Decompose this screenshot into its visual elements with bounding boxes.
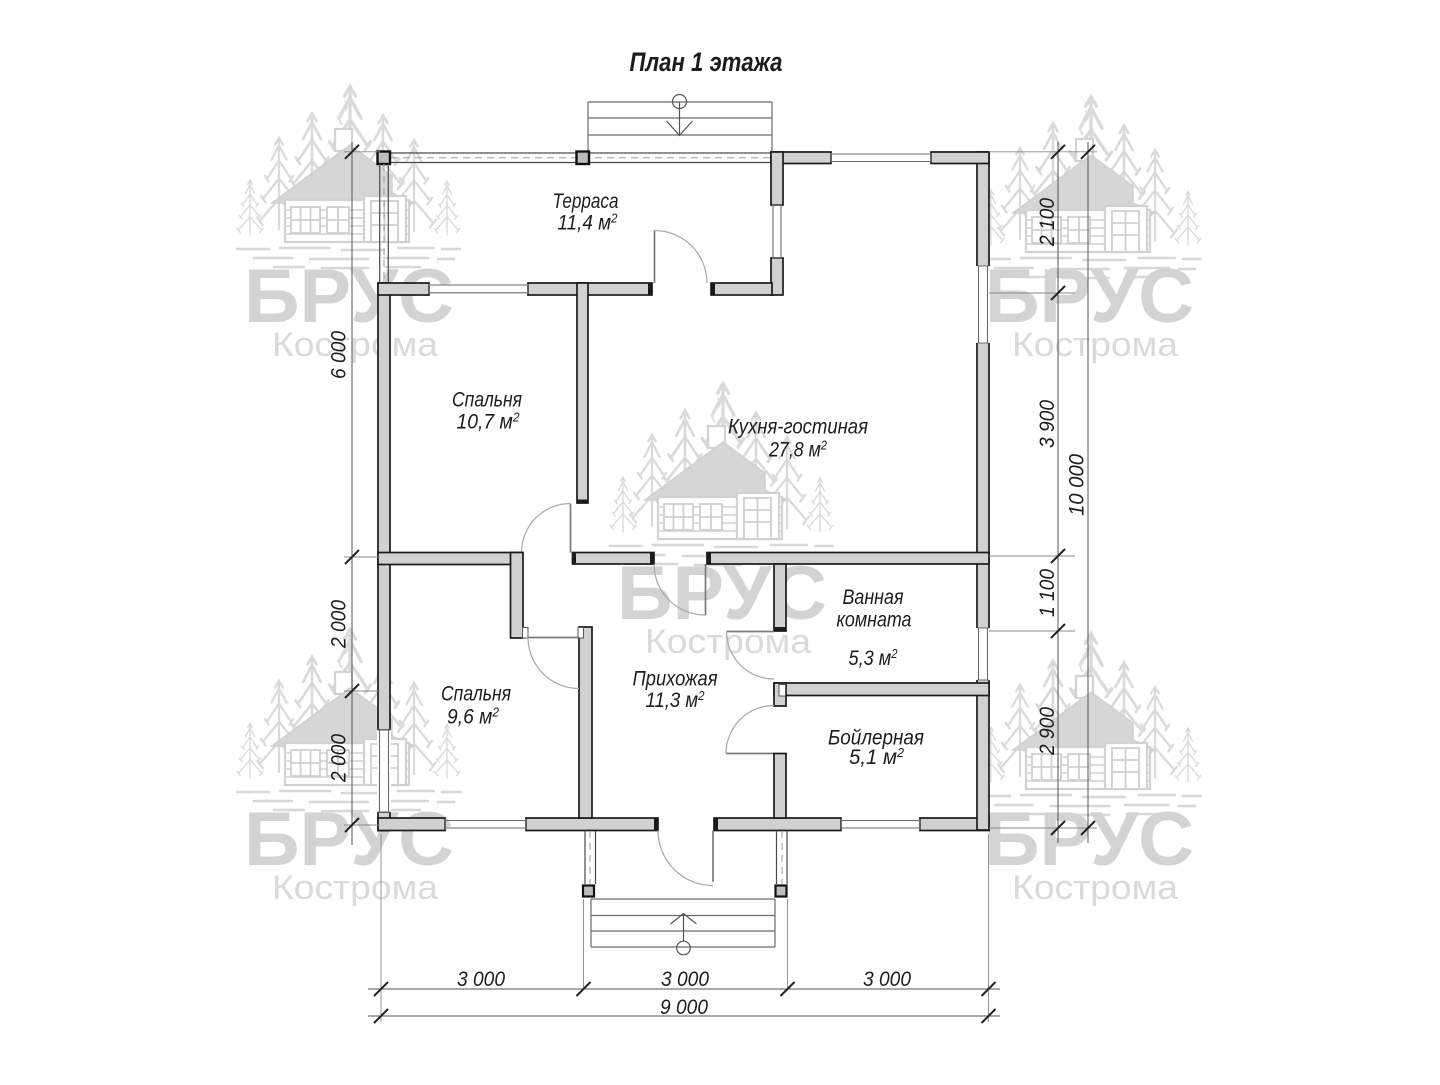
svg-text:10 000: 10 000	[1066, 454, 1089, 516]
svg-text:6 000: 6 000	[328, 331, 351, 379]
svg-text:2 100: 2 100	[1036, 198, 1059, 247]
svg-text:9,6 м2: 9,6 м2	[447, 705, 500, 729]
svg-text:3 000: 3 000	[863, 968, 911, 991]
svg-text:2 900: 2 900	[1036, 707, 1059, 756]
svg-text:5,3 м2: 5,3 м2	[849, 646, 899, 670]
svg-text:11,4 м2: 11,4 м2	[558, 211, 619, 235]
svg-text:27,8 м2: 27,8 м2	[768, 438, 827, 462]
svg-text:Спальня: Спальня	[441, 683, 511, 706]
svg-text:10,7 м2: 10,7 м2	[457, 410, 521, 434]
svg-text:11,3 м2: 11,3 м2	[646, 688, 706, 712]
svg-text:2 000: 2 000	[328, 734, 351, 783]
svg-text:9 000: 9 000	[660, 996, 708, 1019]
svg-text:Спальня: Спальня	[452, 389, 522, 412]
svg-text:План 1 этажа: План 1 этажа	[630, 47, 783, 77]
svg-text:Ванная: Ванная	[843, 586, 904, 609]
svg-text:Прихожая: Прихожая	[633, 668, 718, 691]
svg-text:комната: комната	[837, 609, 912, 632]
svg-text:3 000: 3 000	[661, 968, 709, 991]
svg-text:Кухня-гостиная: Кухня-гостиная	[728, 416, 868, 439]
svg-text:5,1 м2: 5,1 м2	[849, 745, 905, 769]
svg-text:3 900: 3 900	[1036, 400, 1059, 448]
svg-text:1 100: 1 100	[1036, 569, 1059, 617]
svg-text:Терраса: Терраса	[553, 190, 619, 213]
svg-text:2 000: 2 000	[328, 600, 351, 649]
svg-text:3 000: 3 000	[457, 968, 505, 991]
